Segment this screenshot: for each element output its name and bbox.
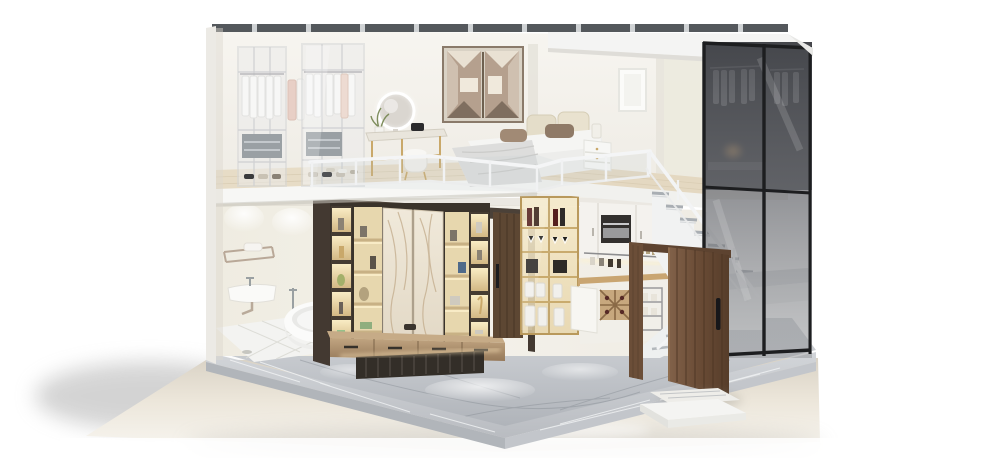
- shoes-left: [244, 174, 281, 179]
- media-feature-wall: [313, 198, 535, 379]
- wardrobe-left: [238, 47, 286, 186]
- table-lamp: [592, 124, 601, 138]
- interior-door-closed: [493, 212, 523, 338]
- open-base-door: [571, 286, 597, 333]
- console-decor: [404, 324, 416, 330]
- left-wall-inner-shadow: [216, 28, 223, 360]
- vanity-tray: [411, 123, 424, 131]
- tv-frame-left: [313, 198, 330, 366]
- picture-canvas: [624, 74, 641, 106]
- towel-roll: [244, 243, 262, 251]
- oven-front: [603, 228, 629, 238]
- counter-and-base: [571, 273, 670, 344]
- loft-cutaway-render: Loft apartment cutaway render: [0, 0, 1000, 458]
- wall-basin: [228, 284, 276, 302]
- floor-drain: [242, 350, 252, 354]
- hanging-clothes-left: [240, 74, 284, 119]
- door-jamb-left: [629, 242, 643, 380]
- scene-svg: [0, 0, 1000, 458]
- entry-door-handle: [716, 298, 721, 330]
- floor-sheen-2: [542, 363, 618, 381]
- mirror-niche-art: [443, 47, 523, 122]
- pillow-taupe-2: [545, 124, 574, 138]
- gold-display-cabinet: [521, 197, 578, 334]
- pillow-taupe-1: [500, 129, 527, 142]
- wine-rack: [600, 290, 630, 320]
- shelf-column-right: [445, 212, 469, 347]
- left-cut-wall: [206, 26, 223, 364]
- wall-by-glass: [664, 46, 703, 196]
- bathroom-downlight-1: [224, 204, 264, 232]
- niche-column-left: [331, 206, 352, 346]
- interior-door-handle: [496, 264, 499, 288]
- bathroom-downlight-2: [272, 208, 312, 236]
- niche-column-right: [470, 212, 489, 348]
- floor-sheen-1: [425, 378, 535, 402]
- drawer-box-left: [242, 134, 282, 158]
- roof-edge-strip: [212, 24, 788, 32]
- shelf-column-left: [354, 207, 382, 347]
